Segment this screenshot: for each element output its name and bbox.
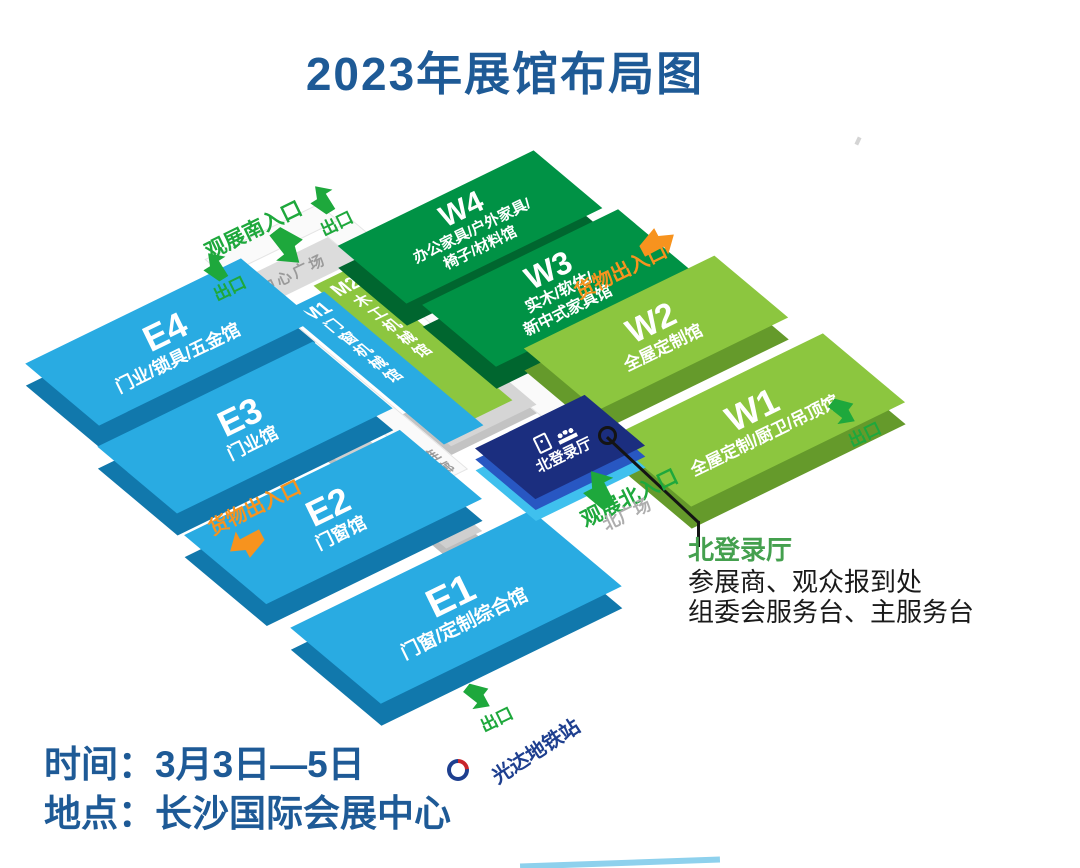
artifact-speck (854, 137, 861, 146)
cropped-shape-edge (520, 857, 720, 868)
page-title: 2023年展馆布局图 (306, 38, 704, 104)
exhibition-layout-map: 2023年展馆布局图 中心广场 连廊 连廊 连廊 连廊 M2 木工机械馆 M1 … (0, 0, 1080, 868)
callout-line2: 组委会服务台、主服务台 (688, 592, 974, 629)
event-time: 时间：3月3日—5日 (44, 734, 365, 788)
badge-icon (532, 432, 552, 454)
event-venue: 地点：长沙国际会展中心 (44, 783, 451, 837)
metro-logo-icon (447, 759, 469, 781)
